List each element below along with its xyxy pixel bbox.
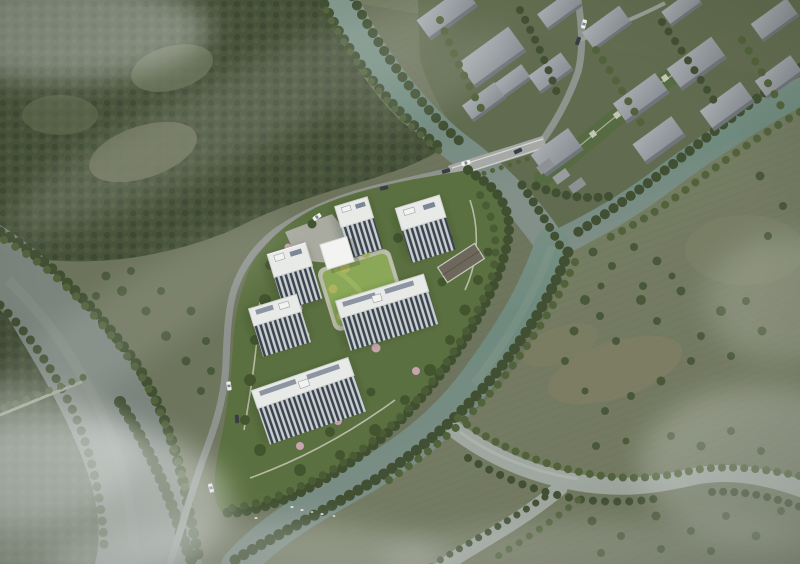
aerial-render [0, 0, 800, 564]
vignette [0, 0, 800, 564]
render-canvas [0, 0, 800, 564]
